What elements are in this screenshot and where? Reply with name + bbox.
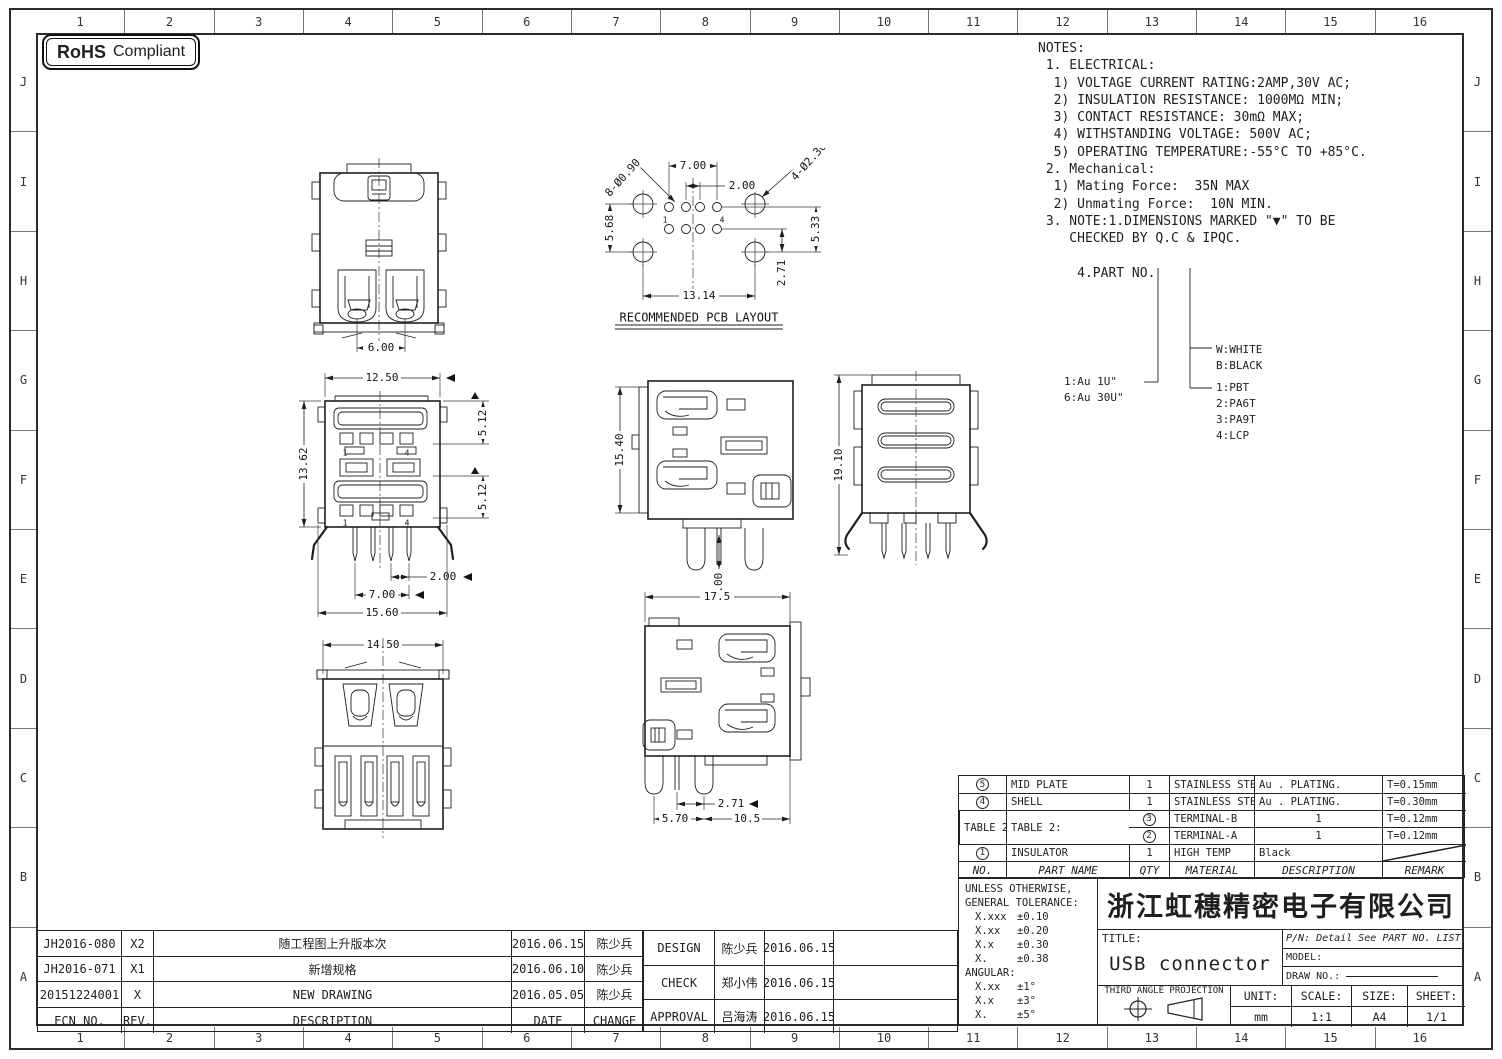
legend-item: 3:PA9T	[1216, 412, 1256, 428]
qc-mark	[415, 591, 424, 599]
third-angle-symbol	[1116, 996, 1212, 1022]
approval-name: 吕海涛	[714, 999, 764, 1033]
dim-pcb-1314: 13.14	[679, 289, 719, 302]
part-no: 4	[959, 793, 1006, 810]
grid-label: E	[1464, 530, 1491, 629]
rev-description: 随工程图上升版本次	[153, 931, 511, 956]
legend-item: 1:Au 1U"	[1064, 374, 1124, 390]
part-name: TERMINAL-A	[1169, 827, 1254, 844]
dim-side-height: 15.40	[613, 431, 626, 469]
drawno-dash	[1346, 976, 1438, 977]
rev-ecn: 20151224001	[38, 981, 121, 1007]
rev-change: 陈少兵	[584, 956, 644, 981]
grid-label: 3	[215, 10, 304, 33]
size-value: A4	[1351, 1006, 1407, 1027]
tolerance-row: X.xx±0.20	[965, 924, 1097, 938]
qc-mark	[749, 800, 758, 808]
grid-label: B	[1464, 828, 1491, 927]
part-name: TERMINAL-B	[1169, 810, 1254, 827]
dim-side2-width: 17.5	[700, 590, 734, 603]
part-no: 5	[959, 776, 1006, 793]
note-line: NOTES:	[1038, 40, 1462, 57]
company-name: 浙江虹穗精密电子有限公司	[1097, 878, 1464, 930]
part-qty: 1	[1129, 844, 1169, 861]
svg-text:5.12: 5.12	[476, 484, 489, 511]
part-material: STAINLESS STEEL	[1169, 776, 1254, 793]
part-qty: 1	[1254, 810, 1382, 827]
rev-header-description: DESCRIPTION	[153, 1007, 511, 1033]
svg-text:2.00: 2.00	[430, 570, 457, 583]
dim-pcb-271: 2.71	[775, 256, 788, 290]
part-qty: 1	[1129, 776, 1169, 793]
grid-label: D	[11, 629, 36, 728]
grid-label: I	[1464, 132, 1491, 231]
view-top: 6.00	[282, 150, 482, 365]
part-material-merged: TABLE 2:	[959, 810, 1006, 844]
rev-ecn: JH2016-071	[38, 956, 121, 981]
grid-label: 4	[304, 10, 393, 33]
note-line	[1038, 248, 1462, 265]
view-side: 15.40 3.00	[595, 365, 810, 600]
part-remark: T=0.30mm	[1382, 793, 1466, 810]
approval-role: CHECK	[644, 965, 714, 999]
grid-label: 12	[1018, 10, 1107, 33]
svg-text:7.00: 7.00	[369, 588, 396, 601]
svg-text:6.00: 6.00	[368, 341, 395, 354]
part-remark: T=0.12mm	[1382, 827, 1466, 844]
grid-label: E	[11, 530, 36, 629]
angular-row: X.x±3°	[965, 994, 1097, 1008]
svg-text:19.10: 19.10	[832, 448, 845, 481]
pn-line: P/N: Detail See PART NO. LIST	[1283, 930, 1464, 949]
note-line: 3. NOTE:1.DIMENSIONS MARKED "▼" TO BE	[1038, 213, 1462, 230]
tolerance-title2: GENERAL TOLERANCE:	[965, 896, 1097, 910]
legend-item: 4:LCP	[1216, 428, 1256, 444]
dim-front-lower: 5.12	[476, 481, 489, 513]
grid-label: 11	[929, 10, 1018, 33]
dim-top-width: 6.00	[363, 341, 399, 354]
svg-text:15.60: 15.60	[365, 606, 398, 619]
size-label: SIZE:	[1351, 986, 1407, 1006]
rev-ecn: JH2016-080	[38, 931, 121, 956]
view-side2: 17.5 2.71 5.70 10.5	[613, 578, 853, 826]
leader-small-holes: 8-Ø0.90	[599, 153, 646, 203]
svg-text:2.71: 2.71	[775, 260, 788, 287]
tolerance-block: UNLESS OTHERWISE, GENERAL TOLERANCE: X.x…	[958, 878, 1097, 1026]
note-line: 1. ELECTRICAL:	[1038, 57, 1462, 74]
drawno-line: DRAW NO.:	[1283, 967, 1464, 985]
grid-label: 2	[125, 10, 214, 33]
title-label: TITLE:	[1102, 932, 1278, 945]
unit-scale-size-sheet: UNIT: SCALE: SIZE: SHEET: mm 1:1 A4 1/1	[1230, 985, 1464, 1026]
grid-label: 14	[1197, 10, 1286, 33]
parts-header-material: MATERIAL	[1169, 861, 1254, 879]
grid-label: 14	[1197, 1027, 1286, 1048]
grid-letters-left: JIHGFEDCBA	[11, 33, 36, 1026]
angular-row: X.xx±1°	[965, 980, 1097, 994]
dim-rear-height: 19.10	[832, 446, 845, 484]
approval-empty	[833, 999, 959, 1033]
rev-date: 2016.06.10	[511, 956, 584, 981]
svg-text:5.68: 5.68	[603, 215, 616, 242]
svg-text:13.14: 13.14	[682, 289, 715, 302]
grid-label: 8	[661, 10, 750, 33]
angular-row: X.±5°	[965, 1008, 1097, 1022]
grid-label: 9	[751, 10, 840, 33]
dim-front-pitch: 2.00	[427, 570, 459, 583]
dim-side2-b: 10.5	[732, 812, 762, 825]
model-line: MODEL:	[1283, 949, 1464, 968]
note-line: 2) INSULATION RESISTANCE: 1000MΩ MIN;	[1038, 92, 1462, 109]
leader-big-holes: 4-Ø2.30	[785, 148, 832, 187]
dim-pcb-2: 2.00	[726, 179, 758, 192]
grid-label: 12	[1018, 1027, 1107, 1048]
grid-label: 1	[36, 10, 125, 33]
qc-mark	[471, 392, 479, 399]
note-line: 5) OPERATING TEMPERATURE:-55°C TO +85°C.	[1038, 144, 1462, 161]
part-qty: 1	[1129, 793, 1169, 810]
grid-label: A	[1464, 928, 1491, 1026]
dim-side2-a: 5.70	[659, 812, 691, 825]
legend-item: 1:PBT	[1216, 380, 1256, 396]
tolerance-rows: X.xxx±0.10X.xx±0.20X.x±0.30X.±0.38	[965, 910, 1097, 966]
svg-text:7.00: 7.00	[680, 159, 707, 172]
part-no: 3	[1129, 810, 1169, 827]
grid-label: J	[1464, 33, 1491, 132]
grid-label: I	[11, 132, 36, 231]
rev-header-ecn: ECN NO.	[38, 1007, 121, 1033]
projection-label: THIRD ANGLE PROJECTION	[1098, 986, 1230, 996]
note-line: 1) VOLTAGE CURRENT RATING:2AMP,30V AC;	[1038, 75, 1462, 92]
grid-label: F	[11, 431, 36, 530]
note-line: 1) Mating Force: 35N MAX	[1038, 178, 1462, 195]
part-description: Au . PLATING.	[1254, 776, 1382, 793]
legend-item: W:WHITE	[1216, 342, 1262, 358]
dim-pcb-568: 5.68	[603, 211, 616, 245]
grid-label: G	[11, 331, 36, 430]
angular-rows: X.xx±1°X.x±3°X.±5°	[965, 980, 1097, 1022]
front-pin4b: 4	[405, 519, 410, 528]
rev-header-date: DATE	[511, 1007, 584, 1033]
grid-label: 10	[840, 10, 929, 33]
dim-front-total: 15.60	[363, 606, 401, 619]
rev-header-rev: REV.	[121, 1007, 153, 1033]
part-material: STAINLESS STEEL	[1169, 793, 1254, 810]
rev-description: NEW DRAWING	[153, 981, 511, 1007]
rev-change: 陈少兵	[584, 981, 644, 1007]
grid-label: H	[11, 232, 36, 331]
approval-empty	[833, 965, 959, 999]
part-description: Au . PLATING.	[1254, 793, 1382, 810]
note-line: 2) Unmating Force: 10N MIN.	[1038, 196, 1462, 213]
dim-front-upper: 5.12	[476, 407, 489, 439]
rohs-compliant-text: Compliant	[113, 43, 185, 61]
qc-mark	[446, 374, 455, 382]
grid-label: 15	[1286, 1027, 1375, 1048]
unit-label: UNIT:	[1231, 986, 1291, 1006]
front-pin1b: 1	[343, 519, 348, 528]
grid-label: C	[11, 729, 36, 828]
unit-value: mm	[1231, 1006, 1291, 1027]
grid-label: D	[1464, 629, 1491, 728]
dim-side2-offset: 2.71	[715, 797, 747, 810]
note-line: 4) WITHSTANDING VOLTAGE: 500V AC;	[1038, 126, 1462, 143]
front-pin4: 4	[405, 449, 410, 458]
angular-label: ANGULAR:	[965, 966, 1097, 980]
approval-name: 郑小伟	[714, 965, 764, 999]
approval-empty	[833, 931, 959, 965]
approval-role: APPROVAL	[644, 999, 714, 1033]
note-line: CHECKED BY Q.C & IPQC.	[1038, 230, 1462, 247]
parts-header-remark: REMARK	[1382, 861, 1466, 879]
tolerance-row: X.xxx±0.10	[965, 910, 1097, 924]
grid-label: 13	[1108, 1027, 1197, 1048]
svg-text:8-Ø0.90: 8-Ø0.90	[602, 156, 643, 199]
revision-table: JH2016-080 X2 随工程图上升版本次 2016.06.15 陈少兵 J…	[37, 930, 643, 1032]
legend-material: 1:PBT2:PA6T3:PA9T4:LCP	[1216, 380, 1256, 444]
scale-value: 1:1	[1291, 1006, 1351, 1027]
pn-model-drawno: P/N: Detail See PART NO. LIST MODEL: DRA…	[1282, 930, 1464, 985]
parts-header-description: DESCRIPTION	[1254, 861, 1382, 879]
part-no: 1	[959, 844, 1006, 861]
projection-cell: THIRD ANGLE PROJECTION	[1097, 985, 1230, 1026]
title-cell: TITLE: USB connector	[1097, 930, 1282, 985]
grid-label: 6	[483, 10, 572, 33]
rev-rev: X1	[121, 956, 153, 981]
pcb-pin4-label: 4	[720, 216, 725, 225]
grid-label: 13	[1108, 10, 1197, 33]
svg-text:2.00: 2.00	[729, 179, 756, 192]
parts-header-name: PART NAME	[1006, 861, 1129, 879]
sheet-value: 1/1	[1407, 1006, 1465, 1027]
legend-item: B:BLACK	[1216, 358, 1262, 374]
parts-header-qty: QTY	[1129, 861, 1169, 879]
rev-date: 2016.06.15	[511, 931, 584, 956]
tolerance-title1: UNLESS OTHERWISE,	[965, 882, 1097, 896]
pcb-pin1-label: 1	[663, 216, 668, 225]
part-remark: T=0.15mm	[1382, 776, 1466, 793]
approval-name: 陈少兵	[714, 931, 764, 965]
svg-text:5.33: 5.33	[809, 216, 822, 243]
part-description-merged: TABLE 2:	[1006, 810, 1129, 844]
grid-numbers-top: 12345678910111213141516	[36, 10, 1464, 33]
view-rear: 19.10	[818, 365, 1008, 590]
view-front: 12.50 1 4 1 4 13.62 5.12 5.12	[283, 363, 518, 625]
part-description: Black	[1254, 844, 1382, 861]
approval-date: 2016.06.15	[764, 999, 833, 1033]
part-name: INSULATOR	[1006, 844, 1129, 861]
dim-pcb-7: 7.00	[676, 159, 710, 172]
view-bottom: 14.50	[283, 628, 483, 843]
drawing-title: USB connector	[1102, 953, 1278, 975]
part-name: MID PLATE	[1006, 776, 1129, 793]
svg-text:15.40: 15.40	[613, 433, 626, 466]
part-remark: T=0.12mm	[1382, 810, 1466, 827]
svg-text:13.62: 13.62	[297, 447, 310, 480]
notes-block: NOTES: 1. ELECTRICAL: 1) VOLTAGE CURRENT…	[1038, 40, 1462, 282]
grid-label: H	[1464, 232, 1491, 331]
dim-front-span: 7.00	[366, 588, 398, 601]
qc-mark	[463, 573, 472, 581]
dim-front-width: 12.50	[363, 371, 401, 384]
dim-front-height: 13.62	[297, 445, 310, 483]
approval-table: DESIGN 陈少兵 2016.06.15 CHECK 郑小伟 2016.06.…	[643, 930, 958, 1032]
rev-change: 陈少兵	[584, 931, 644, 956]
grid-label: 7	[572, 10, 661, 33]
qc-mark	[471, 467, 479, 474]
scale-label: SCALE:	[1291, 986, 1351, 1006]
legend-color: W:WHITEB:BLACK	[1216, 342, 1262, 374]
legend-item: 2:PA6T	[1216, 396, 1256, 412]
grid-label: C	[1464, 729, 1491, 828]
grid-label: 15	[1286, 10, 1375, 33]
grid-label: 16	[1376, 10, 1464, 33]
svg-text:12.50: 12.50	[365, 371, 398, 384]
part-remark-blank	[1382, 844, 1466, 861]
rev-rev: X2	[121, 931, 153, 956]
legend-item: 6:Au 30U"	[1064, 390, 1124, 406]
legend-plating: 1:Au 1U"6:Au 30U"	[1064, 374, 1124, 406]
grid-label: F	[1464, 431, 1491, 530]
grid-label: B	[11, 828, 36, 927]
tolerance-row: X.x±0.30	[965, 938, 1097, 952]
parts-header-no: NO.	[959, 861, 1006, 879]
rohs-bold-text: RoHS	[57, 42, 106, 63]
rev-date: 2016.05.05	[511, 981, 584, 1007]
part-qty: 1	[1254, 827, 1382, 844]
sheet-label: SHEET:	[1407, 986, 1465, 1006]
rev-header-change: CHANGE	[584, 1007, 644, 1033]
tolerance-row: X.±0.38	[965, 952, 1097, 966]
part-number-legend: 1:Au 1U"6:Au 30U" W:WHITEB:BLACK 1:PBT2:…	[1058, 268, 1462, 464]
drawing-sheet: 12345678910111213141516 1234567891011121…	[0, 0, 1502, 1059]
part-name: SHELL	[1006, 793, 1129, 810]
view-pcb-layout: 1 4 7.00 2.00 8-Ø0.90 4-Ø2.30 5.68 5.33 …	[585, 148, 840, 333]
rev-rev: X	[121, 981, 153, 1007]
pcb-layout-label: RECOMMENDED PCB LAYOUT	[620, 311, 779, 325]
note-line: 2. Mechanical:	[1038, 161, 1462, 178]
svg-text:5.12: 5.12	[476, 410, 489, 437]
svg-text:10.5: 10.5	[734, 812, 761, 825]
grid-label: G	[1464, 331, 1491, 430]
note-line: 3) CONTACT RESISTANCE: 30mΩ MAX;	[1038, 109, 1462, 126]
dim-pcb-533: 5.33	[809, 212, 822, 246]
grid-letters-right: JIHGFEDCBA	[1464, 33, 1491, 1026]
approval-role: DESIGN	[644, 931, 714, 965]
rohs-badge: RoHS Compliant	[42, 34, 200, 70]
parts-table: 5 MID PLATE 1 STAINLESS STEEL Au . PLATI…	[958, 775, 1465, 878]
svg-text:2.71: 2.71	[718, 797, 745, 810]
grid-label: 5	[393, 10, 482, 33]
rev-description: 新增规格	[153, 956, 511, 981]
grid-label: J	[11, 33, 36, 132]
part-no: 2	[1129, 827, 1169, 844]
grid-label: 16	[1376, 1027, 1464, 1048]
part-material: HIGH TEMP	[1169, 844, 1254, 861]
svg-text:17.5: 17.5	[704, 590, 731, 603]
grid-label: A	[11, 928, 36, 1026]
svg-text:4-Ø2.30: 4-Ø2.30	[788, 148, 829, 183]
approval-date: 2016.06.15	[764, 931, 833, 965]
svg-text:5.70: 5.70	[662, 812, 689, 825]
approval-date: 2016.06.15	[764, 965, 833, 999]
